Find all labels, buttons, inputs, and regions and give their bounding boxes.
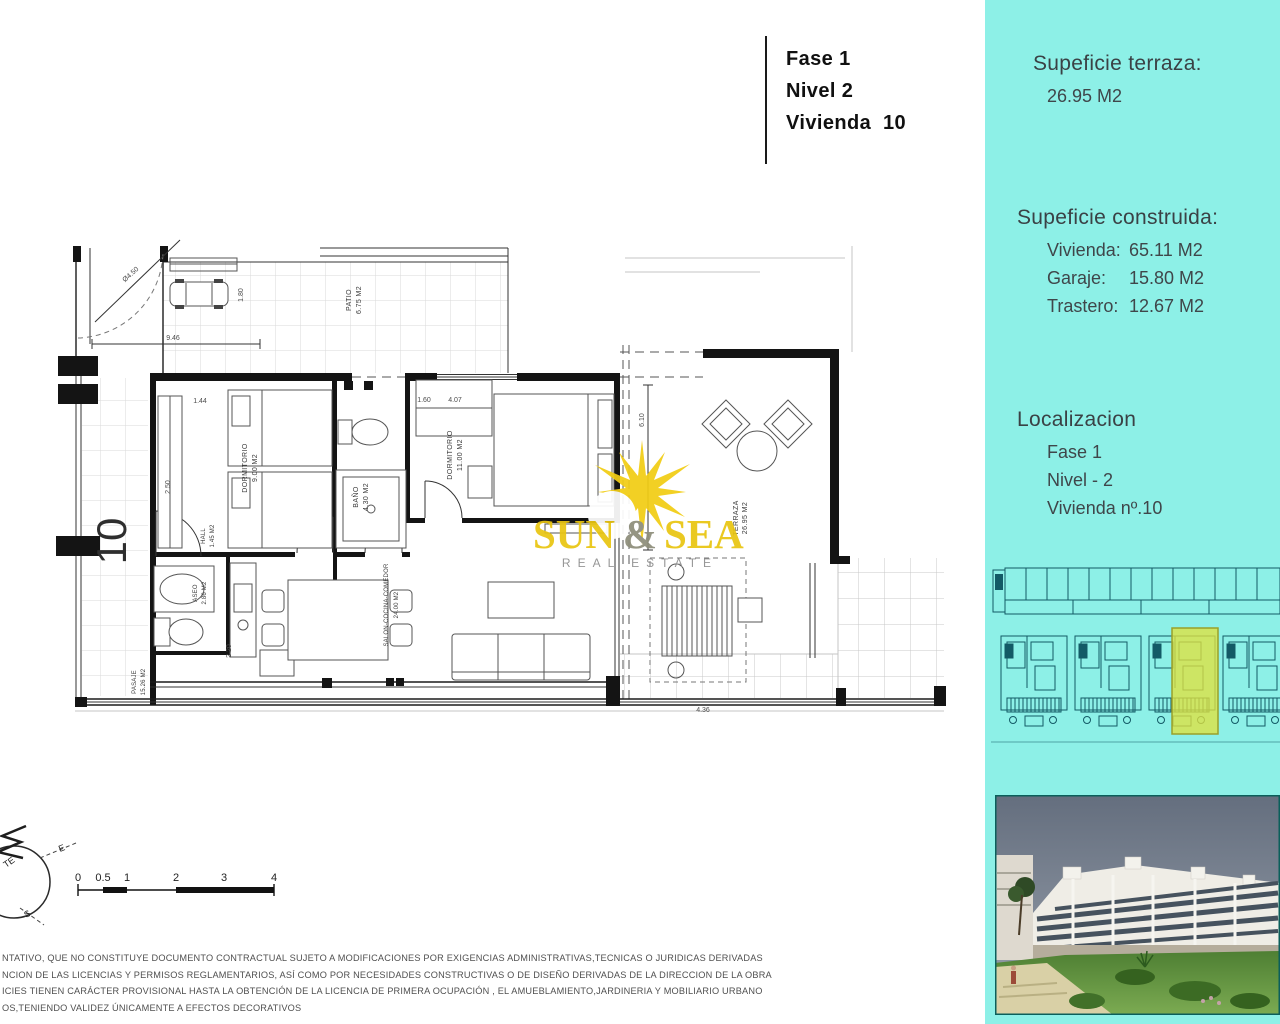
dining-table [288, 580, 388, 660]
construida-value: 12.67 M2 [1129, 296, 1204, 316]
construida-value: 15.80 M2 [1129, 268, 1204, 288]
coffee-table [488, 582, 554, 618]
disclaimer-line: ICIES TIENEN CARÁCTER PROVISIONAL HASTA … [2, 983, 772, 1000]
localizacion-heading: Localizacion [1017, 408, 1136, 432]
room-label: PATIO [346, 289, 353, 311]
construida-value: 65.11 M2 [1129, 240, 1203, 260]
dim-label: 6.10 [639, 413, 646, 427]
disclaimer-line: NTATIVO, QUE NO CONSTITUYE DOCUMENTO CON… [2, 950, 772, 967]
highlighted-unit [1172, 628, 1218, 734]
bush [1169, 981, 1221, 1001]
terraza-heading: Supeficie terraza: [1033, 52, 1202, 76]
site-plan [991, 558, 1280, 748]
dim-label: 1.44 [193, 398, 207, 405]
localizacion-line: Fase 1 [1047, 442, 1162, 470]
scale-tick: 4 [271, 872, 277, 884]
bbq-grill [662, 586, 732, 656]
scale-tick: 3 [221, 872, 227, 884]
project-render-photo [995, 795, 1280, 1015]
bush [1115, 969, 1155, 985]
dim-label: 2.20 [226, 644, 233, 658]
room-area: 11.00 M2 [457, 439, 464, 471]
construida-row: Trastero:12.67 M2 [1047, 296, 1204, 324]
terraza-value: 26.95 M2 [1047, 86, 1122, 107]
legal-disclaimer: NTATIVO, QUE NO CONSTITUYE DOCUMENTO CON… [2, 950, 772, 1016]
title-block-divider [765, 36, 767, 164]
watermark-word2: SEA [664, 511, 744, 557]
room-area: 9.00 M2 [252, 454, 259, 482]
neighbour-lines [625, 246, 852, 352]
construida-list: Vivienda:65.11 M2 Garaje:15.80 M2 Traste… [1047, 240, 1204, 324]
construida-heading: Supeficie construida: [1017, 206, 1218, 230]
dim-label: 4.07 [448, 397, 462, 404]
site-plan-units [1001, 636, 1280, 726]
scale-tick: 1 [124, 872, 130, 884]
shower [336, 470, 406, 548]
chair [262, 624, 284, 646]
bed-double [494, 394, 614, 506]
site-plan-block [995, 574, 1003, 590]
dim-label: 2.50 [165, 480, 172, 494]
scale-tick: 0.5 [95, 872, 110, 884]
bush [1069, 993, 1105, 1009]
chair [262, 590, 284, 612]
construida-label: Vivienda: [1047, 240, 1129, 261]
dim-label: 1.80 [238, 288, 245, 302]
localizacion-line: Nivel - 2 [1047, 470, 1162, 498]
patio-area [73, 240, 508, 374]
dim-label: 9.46 [166, 335, 180, 342]
localizacion-line: Vivienda nº.10 [1047, 498, 1162, 526]
disclaimer-line: NCION DE LAS LICENCIAS Y PERMISOS REGLAM… [2, 967, 772, 984]
room-label: BAÑO [351, 486, 360, 508]
turning-arc [78, 253, 163, 338]
compass-rose: TE E S [0, 826, 76, 925]
room-area: 4.30 M2 [363, 483, 370, 511]
compass-letter: E [57, 842, 66, 854]
room-area: 6.75 M2 [356, 286, 363, 314]
room-label: DORMITORIO [447, 430, 454, 480]
room-label: SALON-COCINA-COMEDOR [384, 563, 390, 646]
terrace-table [737, 431, 777, 471]
watermark-ampersand: & [623, 511, 657, 557]
room-label: DORMITORIO [242, 443, 249, 493]
construida-label: Garaje: [1047, 268, 1129, 289]
car [170, 279, 228, 309]
bush [1230, 993, 1270, 1009]
room-area: 15.26 M2 [141, 668, 147, 695]
title-vivienda: Vivienda 10 [786, 112, 906, 135]
room-area: 24.00 M2 [394, 591, 400, 618]
construida-row: Garaje:15.80 M2 [1047, 268, 1204, 296]
chair [390, 624, 412, 646]
scale-tick: 0 [75, 872, 81, 884]
construida-row: Vivienda:65.11 M2 [1047, 240, 1204, 268]
unit-number-label: 10 [88, 518, 135, 565]
watermark-subtitle: REAL ESTATE [562, 556, 718, 570]
room-area: 2.86 M2 [202, 581, 208, 605]
disclaimer-line: OS,TENIENDO VALIDEZ ÚNICAMENTE A EFECTOS… [2, 1000, 772, 1017]
toilet-bano [352, 419, 388, 445]
info-panel: Supeficie terraza: 26.95 M2 Supeficie co… [985, 0, 1280, 1024]
construida-label: Trastero: [1047, 296, 1129, 317]
left-building [995, 855, 1033, 960]
room-label: ASEO [193, 584, 199, 602]
dim-label: 1.60 [417, 397, 431, 404]
plan-sheet: 10 PATIO 6.75 M2 DORMITORIO 9.00 M2 BAÑO… [0, 0, 1280, 1024]
title-nivel: Nivel 2 [786, 80, 853, 103]
room-label: HALL [201, 528, 207, 544]
person [1011, 971, 1016, 984]
watermark-word1: SUN [533, 511, 615, 557]
floor-plan: 10 PATIO 6.75 M2 DORMITORIO 9.00 M2 BAÑO… [0, 0, 985, 1024]
room-label: PASAJE [132, 670, 138, 694]
scale-tick: 2 [173, 872, 179, 884]
sofa [452, 634, 590, 680]
localizacion-list: Fase 1 Nivel - 2 Vivienda nº.10 [1047, 442, 1162, 526]
room-area: 1.45 M2 [210, 524, 216, 548]
scale-bar: 0 0.5 1 2 3 4 [75, 872, 277, 896]
nightstand [468, 466, 492, 498]
title-fase: Fase 1 [786, 48, 851, 71]
patio-grid [163, 262, 508, 373]
dim-label: 4.36 [696, 707, 710, 714]
toilet-aseo [169, 619, 203, 645]
